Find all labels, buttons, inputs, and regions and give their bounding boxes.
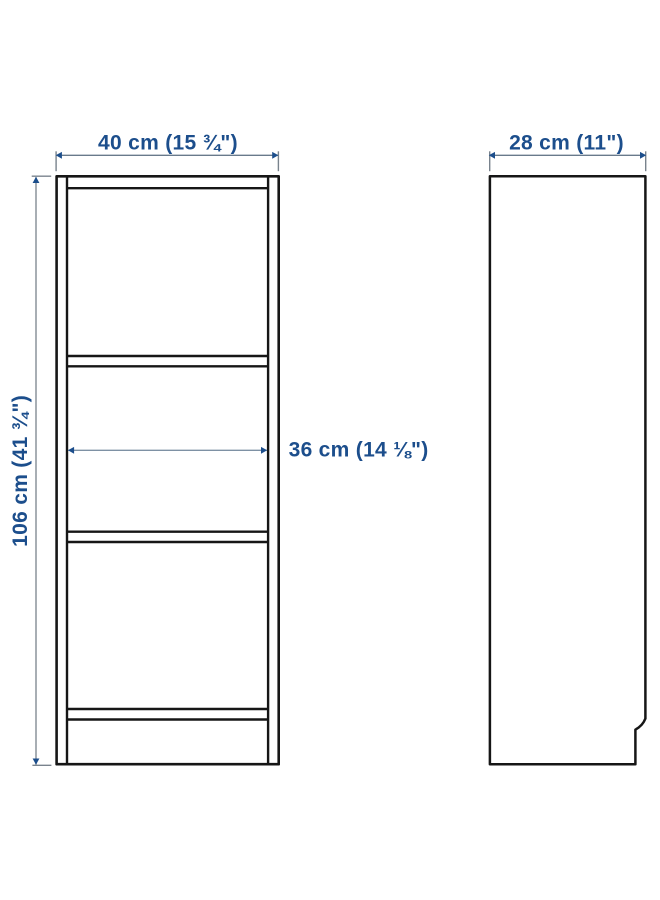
svg-text:40 cm (15 ¾"): 40 cm (15 ¾") — [98, 131, 238, 154]
svg-text:36 cm (14 ⅛"): 36 cm (14 ⅛") — [289, 439, 429, 462]
svg-text:28 cm (11"): 28 cm (11") — [509, 131, 624, 154]
svg-text:106 cm (41 ¾"): 106 cm (41 ¾") — [9, 395, 32, 547]
